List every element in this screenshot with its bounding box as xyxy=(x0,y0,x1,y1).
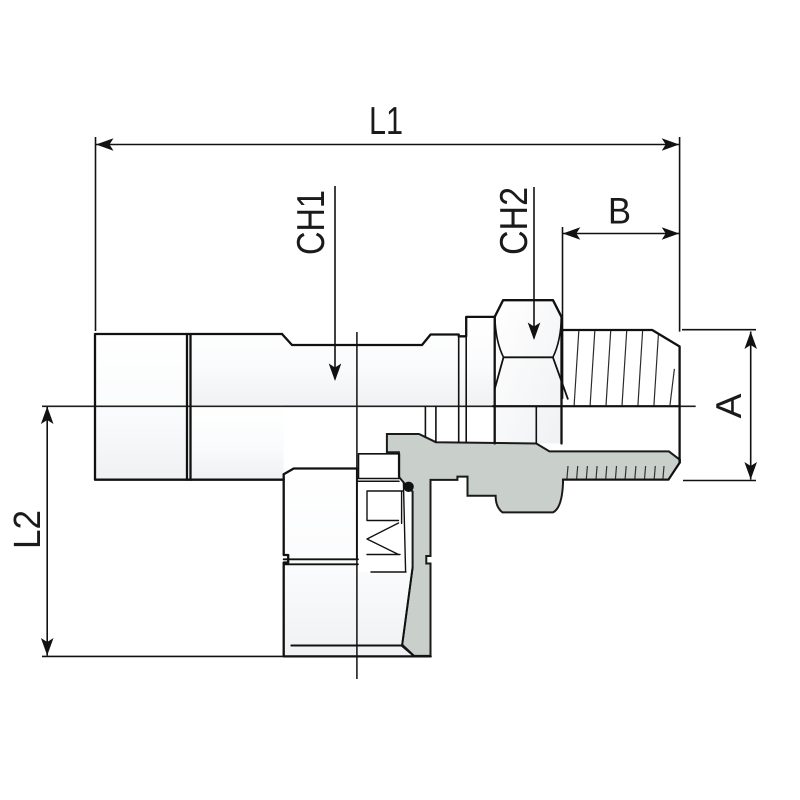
svg-text:A: A xyxy=(708,394,749,419)
svg-text:L2: L2 xyxy=(7,510,49,549)
svg-text:CH1: CH1 xyxy=(290,190,333,255)
svg-text:CH2: CH2 xyxy=(493,187,536,255)
svg-text:L1: L1 xyxy=(369,100,403,143)
svg-text:B: B xyxy=(608,191,631,232)
